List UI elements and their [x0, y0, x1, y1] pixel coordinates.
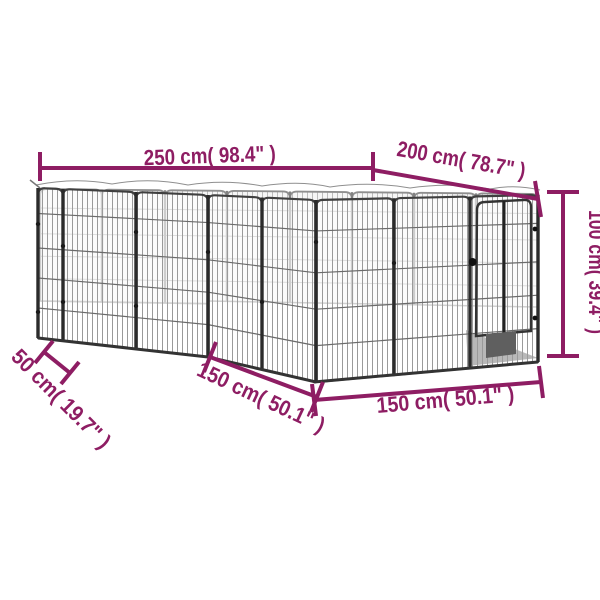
dimension-depth-left: 50 cm( 19.7" )	[7, 341, 117, 453]
dimension-height-right: 100 cm( 39.4" )	[547, 192, 600, 356]
dimension-height-right-label: 100 cm( 39.4" )	[584, 210, 600, 334]
diagram-canvas: 250 cm( 98.4" ) 200 cm( 78.7" ) 100 cm( …	[0, 0, 600, 600]
door-hinge-icon	[533, 316, 538, 321]
dimension-width-front-label: 150 cm( 50.1" )	[376, 381, 516, 418]
dimension-width-left-label: 250 cm( 98.4" )	[143, 141, 276, 171]
playpen-dimension-figure: 250 cm( 98.4" ) 200 cm( 78.7" ) 100 cm( …	[0, 0, 600, 600]
door-hinge-icon	[533, 227, 538, 232]
door-latch-icon	[469, 258, 477, 266]
dimension-width-left: 250 cm( 98.4" )	[40, 141, 373, 181]
dimension-depth-left-label: 50 cm( 19.7" )	[7, 344, 117, 454]
playpen-illustration	[30, 180, 540, 382]
